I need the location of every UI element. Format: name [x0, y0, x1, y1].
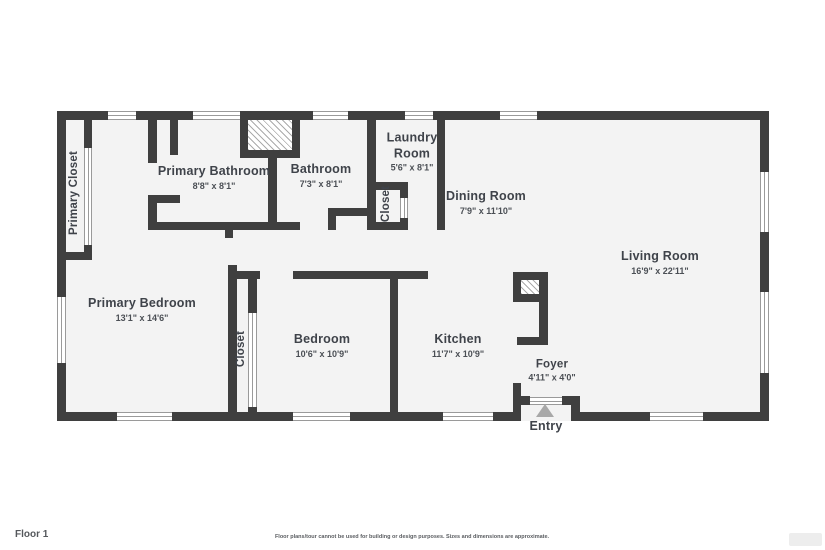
utility-hatch — [521, 280, 539, 294]
wall-segment — [513, 383, 521, 421]
wall-segment — [84, 120, 92, 148]
wall-segment — [517, 337, 548, 345]
window — [760, 172, 769, 232]
window — [117, 412, 172, 421]
room-name: Bathroom — [291, 162, 352, 178]
room-label-bedroom: Bedroom 10'6" x 10'9" — [294, 332, 350, 360]
wall-segment — [571, 396, 580, 421]
room-name: Laundry Room — [379, 130, 445, 161]
room-label-bathroom: Bathroom 7'3" x 8'1" — [291, 162, 352, 190]
room-dims: 16'9" x 22'11" — [621, 266, 699, 277]
room-name: Bedroom — [294, 332, 350, 348]
closet-door — [400, 198, 408, 218]
room-label-kitchen: Kitchen 11'7" x 10'9" — [432, 332, 484, 360]
wall-segment — [539, 272, 548, 345]
entry-label: Entry — [530, 419, 563, 435]
wall-segment — [328, 208, 336, 230]
window — [443, 412, 493, 421]
room-label-primary-bedroom: Primary Bedroom 13'1" x 14'6" — [88, 296, 196, 324]
room-dims: 13'1" x 14'6" — [88, 313, 196, 324]
wall-segment — [390, 271, 398, 421]
room-name: Foyer — [528, 358, 575, 372]
wall-segment — [400, 182, 408, 198]
floor-number-label: Floor 1 — [15, 529, 48, 540]
room-name: Closet — [379, 186, 393, 222]
room-dims: 7'9" x 11'10" — [446, 206, 526, 217]
window — [313, 111, 348, 120]
room-dims: 7'3" x 8'1" — [291, 179, 352, 190]
window — [108, 111, 136, 120]
wall-segment — [170, 120, 178, 155]
wall-segment — [148, 222, 300, 230]
room-name: Primary Bedroom — [88, 296, 196, 312]
room-label-living-room: Living Room 16'9" x 22'11" — [621, 249, 699, 277]
closet-door — [248, 313, 257, 407]
wall-segment — [57, 111, 66, 421]
closet-door — [84, 148, 92, 245]
room-dims: 10'6" x 10'9" — [294, 349, 350, 360]
wall-segment — [367, 120, 376, 190]
room-name: Entry — [530, 419, 563, 435]
wall-segment — [225, 230, 233, 238]
room-label-laundry-room: Laundry Room 5'6" x 8'1" — [379, 130, 445, 174]
room-name: Primary Closet — [67, 151, 81, 235]
entry-arrow-icon — [536, 404, 554, 417]
disclaimer-text: Floor plans/tour cannot be used for buil… — [275, 534, 549, 540]
floorplan-canvas: Primary Closet Primary Bathroom 8'8" x 8… — [0, 0, 825, 550]
room-label-dining-room: Dining Room 7'9" x 11'10" — [446, 189, 526, 217]
wall-segment — [248, 407, 257, 421]
room-label-hall-closet: Closet — [379, 186, 393, 222]
wall-segment — [240, 150, 300, 158]
window — [760, 292, 769, 373]
room-label-primary-closet: Primary Closet — [67, 151, 81, 235]
wall-segment — [400, 218, 408, 230]
window — [57, 297, 66, 363]
watermark — [789, 533, 822, 546]
window — [500, 111, 537, 120]
window — [293, 412, 350, 421]
room-dims: 4'11" x 4'0" — [528, 373, 575, 384]
wall-segment — [760, 111, 769, 421]
room-dims: 11'7" x 10'9" — [432, 349, 484, 360]
room-dims: 5'6" x 8'1" — [379, 163, 445, 174]
room-name: Living Room — [621, 249, 699, 265]
wall-segment — [148, 120, 157, 163]
window — [193, 111, 240, 120]
shower-hatch — [248, 120, 292, 150]
room-label-foyer: Foyer 4'11" x 4'0" — [528, 358, 575, 385]
wall-segment — [57, 252, 92, 260]
wall-segment — [293, 271, 428, 279]
wall-segment — [237, 271, 260, 279]
window — [405, 111, 433, 120]
room-name: Primary Bathroom — [158, 164, 270, 180]
window — [650, 412, 703, 421]
room-label-bedroom-closet: Closet — [234, 331, 248, 367]
room-dims: 8'8" x 8'1" — [158, 181, 270, 192]
room-name: Closet — [234, 331, 248, 367]
room-name: Dining Room — [446, 189, 526, 205]
room-label-primary-bathroom: Primary Bathroom 8'8" x 8'1" — [158, 164, 270, 192]
room-name: Kitchen — [432, 332, 484, 348]
